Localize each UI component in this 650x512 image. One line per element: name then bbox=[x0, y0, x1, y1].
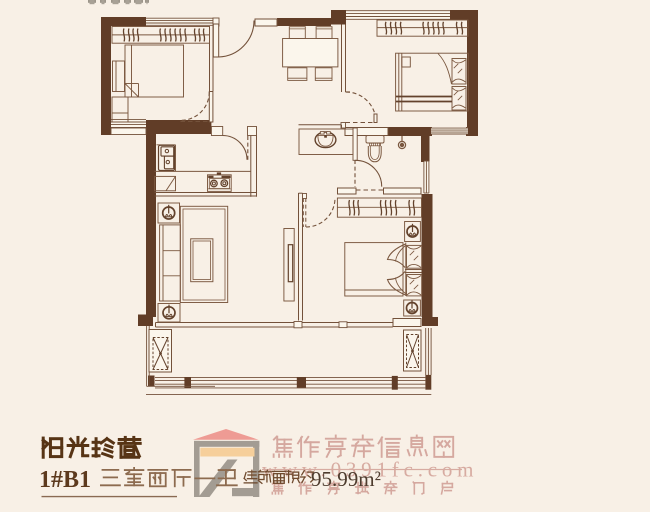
svg-text:95.99m²: 95.99m² bbox=[311, 467, 381, 491]
svg-text:1#B1: 1#B1 bbox=[39, 467, 91, 493]
